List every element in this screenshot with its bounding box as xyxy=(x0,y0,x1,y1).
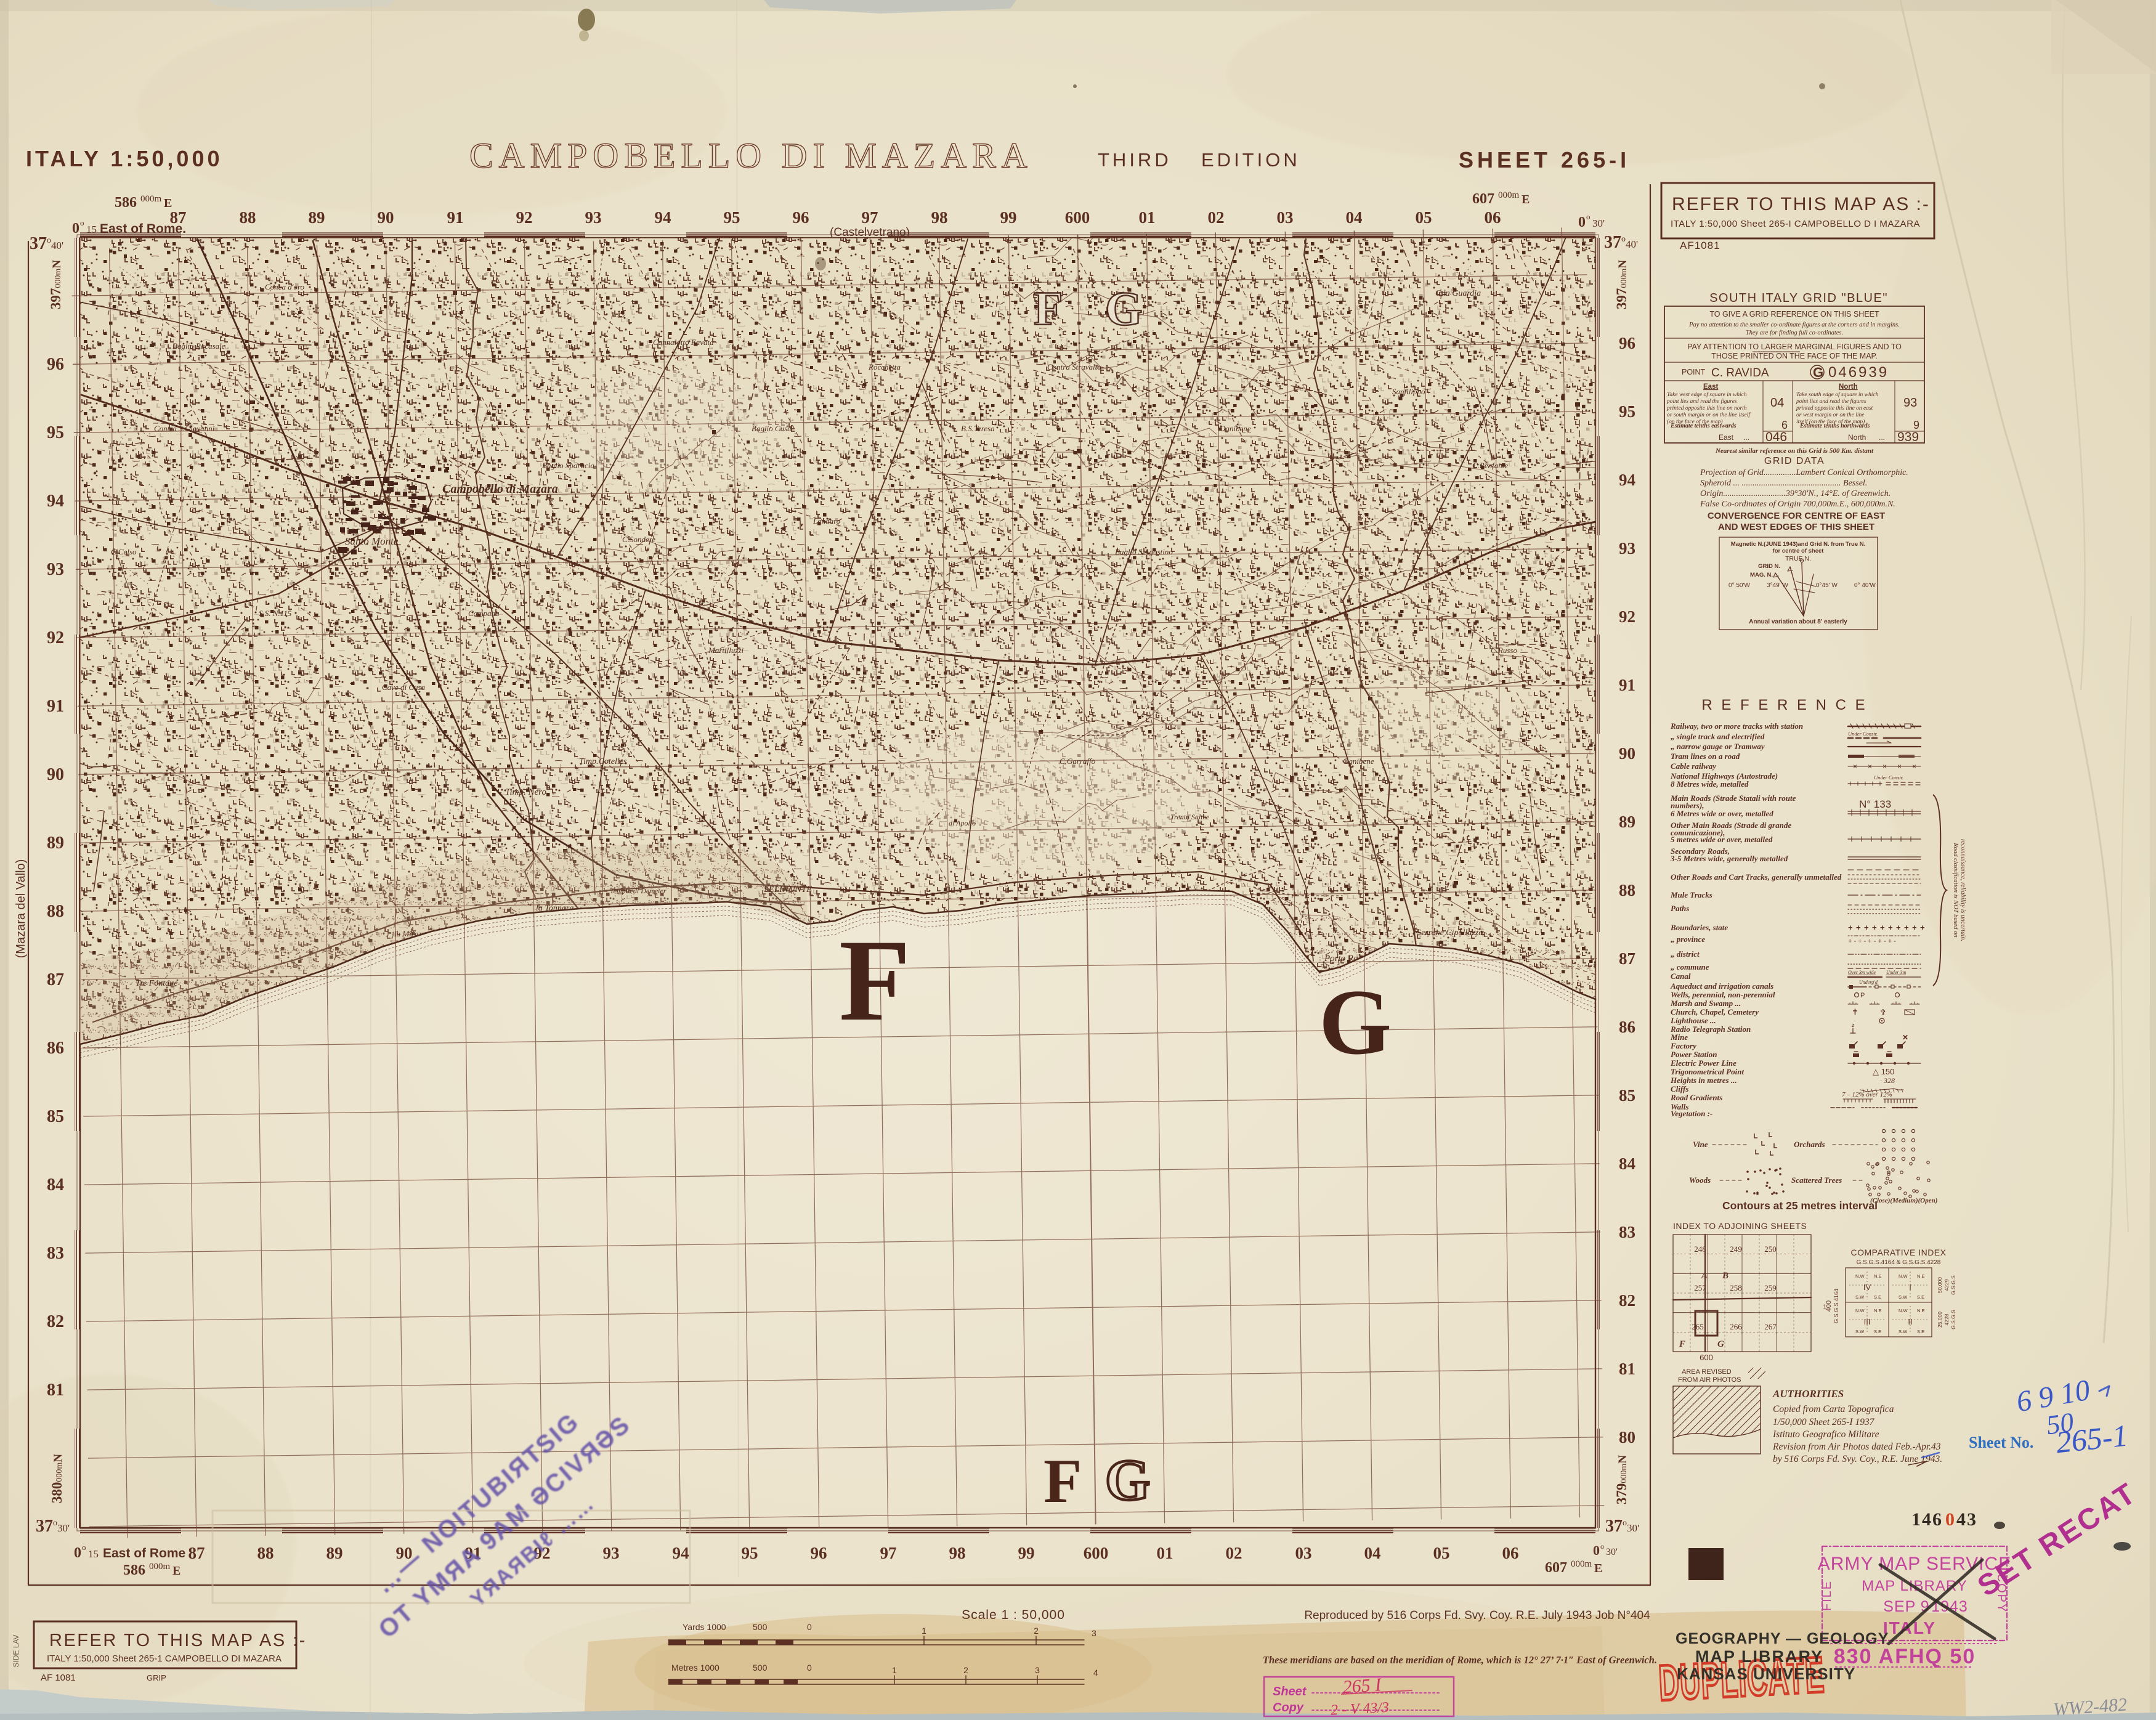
svg-text:PAY ATTENTION TO LARGER MA: PAY ATTENTION TO LARGER MARGINAL FIGURES… xyxy=(1687,343,1902,351)
svg-text:7 – 12% over 12%: 7 – 12% over 12% xyxy=(1842,1091,1892,1098)
svg-text:Church, Chapel, Cemetery: Church, Chapel, Cemetery xyxy=(1671,1007,1759,1016)
svg-text:o: o xyxy=(80,218,84,227)
svg-text:C. RAVIDA: C. RAVIDA xyxy=(1711,367,1769,379)
svg-text:Paths: Paths xyxy=(1671,904,1689,913)
svg-text:94: 94 xyxy=(655,208,671,227)
svg-text:×: × xyxy=(1897,762,1902,771)
svg-text:×: × xyxy=(1882,762,1887,771)
svg-text:88: 88 xyxy=(1619,881,1635,899)
svg-text:B.S.Teresa: B.S.Teresa xyxy=(961,424,995,433)
svg-text:Trenta Salme: Trenta Salme xyxy=(1170,813,1210,821)
svg-text:o: o xyxy=(1600,1542,1604,1551)
svg-text:Take west edge of square in wh: Take west edge of square in which xyxy=(1667,391,1747,398)
svg-text:Vegetation :-: Vegetation :- xyxy=(1671,1109,1712,1118)
svg-text:...: ... xyxy=(1743,433,1749,442)
svg-text:86: 86 xyxy=(1619,1018,1635,1036)
svg-text:N.W: N.W xyxy=(1855,1273,1865,1279)
svg-text:046: 046 xyxy=(1765,430,1787,444)
svg-text:000m: 000m xyxy=(140,194,162,204)
svg-text:Tempio di Demeter: Tempio di Demeter xyxy=(610,886,667,895)
svg-text:G.S.G.S.4164 & G.S.G.S.4228: G.S.G.S.4164 & G.S.G.S.4228 xyxy=(1857,1259,1941,1266)
svg-text:MAG. N.: MAG. N. xyxy=(1750,572,1773,578)
svg-text:Mine: Mine xyxy=(1670,1032,1688,1042)
svg-text:Conca d'oro: Conca d'oro xyxy=(265,282,305,291)
svg-text:or west margin or on the line: or west margin or on the line xyxy=(1796,412,1864,418)
svg-text:Ognibene: Ognibene xyxy=(1220,424,1251,433)
svg-text:Timp.Cotelles: Timp.Cotelles xyxy=(579,757,627,766)
svg-text:Power Station: Power Station xyxy=(1671,1050,1717,1059)
svg-text:S.W: S.W xyxy=(1855,1329,1865,1334)
svg-text:S.E: S.E xyxy=(1917,1294,1924,1300)
svg-text:15: 15 xyxy=(86,224,97,235)
svg-text:82: 82 xyxy=(1619,1291,1635,1310)
svg-text:93: 93 xyxy=(1619,539,1635,558)
svg-text:AUTHORITIES: AUTHORITIES xyxy=(1772,1388,1844,1400)
svg-text:0°45' W: 0°45' W xyxy=(1816,582,1838,589)
svg-text:000m: 000m xyxy=(1498,190,1520,200)
svg-text:94: 94 xyxy=(47,492,64,511)
svg-text:GRIP: GRIP xyxy=(147,1673,166,1682)
svg-text:Cable railway: Cable railway xyxy=(1671,761,1716,771)
svg-text:...: ... xyxy=(1879,433,1885,442)
svg-text:82: 82 xyxy=(47,1312,64,1331)
svg-text:AF 1081: AF 1081 xyxy=(41,1673,76,1683)
svg-text:REFER TO THIS MAP AS :-: REFER TO THIS MAP AS :- xyxy=(1672,194,1930,214)
svg-text:E: E xyxy=(172,1564,180,1578)
svg-text:Baglio Sparucia: Baglio Sparucia xyxy=(542,461,594,470)
svg-text:02: 02 xyxy=(1226,1544,1242,1562)
svg-text:Under Constr.: Under Constr. xyxy=(1848,731,1878,737)
svg-text:Magnetic N.(JUNE 1943)and Grid: Magnetic N.(JUNE 1943)and Grid N. from T… xyxy=(1731,541,1866,548)
svg-text:CAMPOBELLO DI MAZARA: CAMPOBELLO DI MAZARA xyxy=(469,136,1033,176)
svg-text:3°49' W: 3°49' W xyxy=(1767,582,1788,589)
svg-text:N.E: N.E xyxy=(1917,1308,1925,1313)
svg-text:93: 93 xyxy=(585,208,602,227)
svg-text:Annual variation about 8' east: Annual variation about 8' easterly xyxy=(1749,619,1847,625)
svg-text:E: E xyxy=(1522,193,1530,206)
svg-text:×: × xyxy=(1912,762,1916,771)
svg-text:or south margin or on the line: or south margin or on the line itself xyxy=(1667,412,1751,418)
svg-text:90: 90 xyxy=(47,765,64,784)
svg-text:Underg'd: Underg'd xyxy=(1859,980,1878,985)
svg-text:92: 92 xyxy=(1619,607,1635,626)
svg-text:N.W: N.W xyxy=(1899,1308,1908,1313)
svg-text:6 Metres wide or over, metalle: 6 Metres wide or over, metalled xyxy=(1671,809,1773,818)
svg-text:Canal: Canal xyxy=(1671,972,1691,981)
svg-text:607: 607 xyxy=(1545,1560,1567,1576)
svg-text:Yards 1000: Yards 1000 xyxy=(683,1622,726,1632)
svg-text:3: 3 xyxy=(1035,1665,1040,1675)
svg-text:96: 96 xyxy=(793,208,809,227)
svg-text:· 328: · 328 xyxy=(1880,1076,1895,1085)
svg-text:000m: 000m xyxy=(149,1562,171,1572)
svg-text:S.S. N.115: S.S. N.115 xyxy=(259,609,292,618)
svg-text:1/50,000 Sheet 265-I 1937: 1/50,000 Sheet 265-I 1937 xyxy=(1773,1417,1875,1427)
svg-text:4229: 4229 xyxy=(1943,1279,1950,1291)
svg-text:East of Rome: East of Rome xyxy=(103,1546,185,1560)
svg-text:G: G xyxy=(1105,1448,1150,1512)
svg-text:500: 500 xyxy=(753,1622,768,1632)
svg-text:259: 259 xyxy=(1764,1283,1777,1292)
svg-text:di Apollo: di Apollo xyxy=(949,819,976,827)
svg-text:+: + xyxy=(1864,923,1869,932)
svg-text:z: z xyxy=(1852,1022,1855,1028)
svg-text:Contra Stravalto: Contra Stravalto xyxy=(1047,362,1101,371)
svg-text:C.Sondere: C.Sondere xyxy=(622,535,655,544)
svg-text:CONVERGENCE FOR CENTRE OF: CONVERGENCE FOR CENTRE OF EAST xyxy=(1708,511,1885,521)
svg-text:96: 96 xyxy=(47,355,64,374)
svg-text:✕: ✕ xyxy=(1902,1033,1908,1042)
svg-text:0: 0 xyxy=(807,1622,812,1632)
svg-text:Trigonometrical Point: Trigonometrical Point xyxy=(1671,1067,1744,1076)
svg-text:G.S.G.S: G.S.G.S xyxy=(1950,1275,1956,1295)
svg-text:50,000: 50,000 xyxy=(1937,1277,1943,1293)
svg-text:N.E: N.E xyxy=(1917,1273,1925,1279)
svg-text:„ single track and electr: „ single track and electrified xyxy=(1671,732,1765,741)
svg-text:250: 250 xyxy=(1764,1244,1777,1254)
svg-text:+: + xyxy=(1920,923,1925,932)
svg-text:+: + xyxy=(1896,923,1901,932)
svg-text:Serrone Cipollazzo: Serrone Cipollazzo xyxy=(1417,928,1483,938)
svg-text:4228: 4228 xyxy=(1943,1313,1950,1325)
svg-text:FROM AIR PHOTOS: FROM AIR PHOTOS xyxy=(1678,1376,1741,1384)
svg-text:Baglio Cusa: Baglio Cusa xyxy=(752,424,792,433)
svg-text:94: 94 xyxy=(1619,471,1635,489)
svg-text:GRID N.: GRID N. xyxy=(1758,563,1780,570)
svg-text:2 - V 43/3: 2 - V 43/3 xyxy=(1330,1700,1389,1719)
svg-text:03: 03 xyxy=(1295,1544,1312,1562)
svg-text:6: 6 xyxy=(1781,419,1788,431)
svg-text:„ commune: „ commune xyxy=(1671,962,1709,972)
svg-text:S.E: S.E xyxy=(1874,1294,1881,1300)
svg-text:3: 3 xyxy=(1092,1628,1096,1638)
svg-text:o: o xyxy=(82,1543,86,1552)
svg-text:87: 87 xyxy=(47,970,64,989)
svg-text:G.S.G.S: G.S.G.S xyxy=(1950,1310,1956,1329)
svg-text:N.E: N.E xyxy=(1874,1273,1882,1279)
svg-text:SOUTH ITALY GRID "BLUE": SOUTH ITALY GRID "BLUE" xyxy=(1709,291,1888,305)
svg-text:586: 586 xyxy=(123,1562,145,1578)
svg-text:Reproduced by 516 Corps Fd.: Reproduced by 516 Corps Fd. Svy. Coy. R.… xyxy=(1304,1609,1650,1622)
svg-text:Wells, perennial, non-perennia: Wells, perennial, non-perennial xyxy=(1671,990,1775,999)
svg-text:KANSAS UNIVERSITY: KANSAS UNIVERSITY xyxy=(1677,1665,1855,1683)
svg-text:1: 1 xyxy=(892,1665,897,1675)
svg-text:Tre Fontane: Tre Fontane xyxy=(136,979,177,988)
svg-text:SELINUNTE: SELINUNTE xyxy=(764,885,812,894)
svg-text:06: 06 xyxy=(1485,208,1501,227)
svg-text:FILE: FILE xyxy=(1820,1580,1834,1611)
svg-text:2: 2 xyxy=(1034,1626,1039,1636)
svg-text:printed opposite this line on: printed opposite this line on east xyxy=(1796,405,1873,412)
svg-text:„ district: „ district xyxy=(1671,949,1700,959)
svg-text:B: B xyxy=(1722,1271,1728,1281)
svg-text:Under 3m: Under 3m xyxy=(1886,970,1906,975)
svg-text:MAP LIBRARY: MAP LIBRARY xyxy=(1695,1647,1823,1666)
svg-text:Timp. Nero: Timp. Nero xyxy=(505,787,546,797)
svg-text:2: 2 xyxy=(963,1665,968,1675)
svg-text:04: 04 xyxy=(1770,396,1784,410)
svg-text:Electric Power Line: Electric Power Line xyxy=(1670,1058,1737,1068)
svg-text:These meridians are based on t: These meridians are based on the meridia… xyxy=(1263,1654,1657,1666)
svg-text:88: 88 xyxy=(240,208,256,227)
svg-text:+: + xyxy=(1880,923,1885,932)
svg-text:Take south edge of square in w: Take south edge of square in which xyxy=(1796,391,1879,398)
svg-text:for centre of sheet: for centre of sheet xyxy=(1773,548,1825,554)
svg-text:0: 0 xyxy=(1578,214,1586,230)
svg-text:F: F xyxy=(1679,1339,1685,1349)
svg-text:point lies and read the figure: point lies and read the figures xyxy=(1796,398,1866,405)
svg-text:0° 50'W: 0° 50'W xyxy=(1728,582,1750,589)
svg-text:80: 80 xyxy=(1619,1428,1635,1446)
svg-text:87: 87 xyxy=(188,1544,205,1562)
svg-text:600: 600 xyxy=(1084,1544,1109,1562)
svg-text:Railway, two or more tracks wi: Railway, two or more tracks with station xyxy=(1670,721,1803,731)
svg-text:+ - + - + - + - + -: + - + - + - + - + - xyxy=(1848,938,1896,945)
svg-text:25,000: 25,000 xyxy=(1937,1312,1943,1328)
svg-text:146: 146 xyxy=(1911,1509,1943,1530)
svg-text:8 Metres wide, metalled: 8 Metres wide, metalled xyxy=(1671,779,1749,789)
svg-text:95: 95 xyxy=(724,208,740,227)
svg-text:0: 0 xyxy=(74,1545,81,1561)
svg-text:POINT: POINT xyxy=(1682,368,1706,376)
svg-text:TO GIVE A GRID REFERENCE: TO GIVE A GRID REFERENCE ON THIS SHEET xyxy=(1709,310,1879,318)
svg-text:Boundaries, state: Boundaries, state xyxy=(1670,923,1728,932)
svg-text:AF1081: AF1081 xyxy=(1680,240,1720,251)
svg-text:267: 267 xyxy=(1764,1322,1777,1331)
svg-text:F: F xyxy=(1044,1446,1082,1516)
svg-text:81: 81 xyxy=(1619,1360,1635,1378)
svg-text:05: 05 xyxy=(1433,1544,1450,1562)
svg-text:939: 939 xyxy=(1897,430,1919,444)
svg-text:93: 93 xyxy=(47,560,64,579)
svg-text:False Co-ordinates of Origin 7: False Co-ordinates of Origin 700,000m.E.… xyxy=(1700,500,1895,509)
svg-text:„ narrow gauge or Tramway: „ narrow gauge or Tramway xyxy=(1671,742,1765,751)
svg-text:„ province: „ province xyxy=(1671,935,1705,944)
svg-text:Rocchetta: Rocchetta xyxy=(868,362,901,371)
svg-text:Origin........................: Origin.............................39°30… xyxy=(1700,489,1891,498)
svg-text:Estimate tenths northwards: Estimate tenths northwards xyxy=(1799,423,1870,429)
svg-text:Sheet: Sheet xyxy=(1273,1685,1307,1698)
svg-text:C.Celso: C.Celso xyxy=(111,547,137,556)
svg-text:Mule Tracks: Mule Tracks xyxy=(1670,890,1712,899)
svg-text:265: 265 xyxy=(1692,1322,1704,1331)
svg-text:91: 91 xyxy=(447,208,464,227)
svg-text:Woods: Woods xyxy=(1689,1175,1711,1185)
svg-text:+: + xyxy=(1856,923,1861,932)
svg-text:98: 98 xyxy=(931,208,948,227)
svg-text:Spheroid ... .................: Spheroid ... ...........................… xyxy=(1700,479,1867,488)
svg-text:Sheet No.: Sheet No. xyxy=(1969,1434,2033,1451)
svg-text:89: 89 xyxy=(47,834,64,853)
svg-text:G: G xyxy=(1319,970,1392,1074)
svg-text:North: North xyxy=(1839,383,1858,391)
svg-text:0: 0 xyxy=(1945,1509,1955,1530)
svg-text:△ 150: △ 150 xyxy=(1873,1067,1894,1076)
svg-text:97: 97 xyxy=(862,208,878,227)
svg-text:✝: ✝ xyxy=(1852,1007,1858,1016)
svg-text:248: 248 xyxy=(1694,1244,1706,1254)
svg-text:Baglio Racasale: Baglio Racasale xyxy=(172,341,225,351)
svg-text:SHEET 265-I: SHEET 265-I xyxy=(1459,147,1630,172)
svg-text:Other Roads and Cart Tracks, g: Other Roads and Cart Tracks, generally u… xyxy=(1671,872,1842,882)
svg-text:258: 258 xyxy=(1730,1283,1742,1292)
svg-text:Scattered Trees: Scattered Trees xyxy=(1791,1175,1842,1185)
svg-text:90: 90 xyxy=(1619,744,1635,763)
svg-text:91: 91 xyxy=(47,697,64,716)
svg-text:Under Constr.: Under Constr. xyxy=(1874,774,1903,781)
svg-text:06: 06 xyxy=(1502,1544,1519,1562)
svg-text:ITALY 1:50,000: ITALY 1:50,000 xyxy=(26,146,223,171)
svg-text:+: + xyxy=(1872,923,1877,932)
svg-text:C.Garraffo: C.Garraffo xyxy=(1060,757,1096,766)
svg-text:89: 89 xyxy=(326,1544,343,1562)
svg-text:81: 81 xyxy=(47,1381,64,1400)
svg-text:4: 4 xyxy=(1093,1668,1098,1677)
svg-text:85: 85 xyxy=(1619,1086,1635,1105)
svg-text:88: 88 xyxy=(257,1544,274,1562)
svg-text:They are for finding full co-o: They are for finding full co-ordinates. xyxy=(1746,330,1843,336)
svg-text:Copy: Copy xyxy=(1273,1701,1304,1714)
svg-text:F: F xyxy=(839,916,910,1045)
svg-text:S.W: S.W xyxy=(1899,1294,1908,1300)
svg-text:3-5 Metres wide, generally met: 3-5 Metres wide, generally metalled xyxy=(1670,854,1788,863)
svg-text:96: 96 xyxy=(811,1544,827,1562)
svg-text:04: 04 xyxy=(1364,1544,1381,1562)
svg-text:95: 95 xyxy=(1619,402,1635,421)
svg-text:96: 96 xyxy=(1619,334,1635,352)
svg-text:97: 97 xyxy=(880,1544,897,1562)
svg-text:×: × xyxy=(1868,762,1872,771)
svg-text:Campana: Campana xyxy=(468,609,500,618)
svg-text:Projection of Grid............: Projection of Grid...............Lambert… xyxy=(1700,468,1908,477)
svg-text:EDITION: EDITION xyxy=(1201,149,1300,171)
svg-text:P: P xyxy=(1860,992,1865,999)
svg-text:05: 05 xyxy=(1416,208,1432,227)
svg-text:S.W: S.W xyxy=(1899,1329,1908,1334)
svg-text:East: East xyxy=(1719,433,1734,442)
svg-text:Ognibene: Ognibene xyxy=(1343,757,1374,766)
svg-text:G: G xyxy=(1105,282,1143,335)
svg-text:30': 30' xyxy=(1592,217,1605,229)
svg-text:01: 01 xyxy=(1139,208,1156,227)
svg-text:500: 500 xyxy=(753,1663,768,1673)
svg-text:Istituto Geografico Militare: Istituto Geografico Militare xyxy=(1772,1429,1879,1440)
svg-text:SIDE LAV: SIDE LAV xyxy=(12,1634,20,1667)
svg-text:INDEX TO ADJOINING SHEETS: INDEX TO ADJOINING SHEETS xyxy=(1673,1221,1807,1231)
svg-text:15: 15 xyxy=(88,1548,99,1560)
svg-text:600: 600 xyxy=(1700,1353,1713,1362)
svg-text:N.W: N.W xyxy=(1855,1308,1865,1313)
svg-text:Orchards: Orchards xyxy=(1794,1140,1825,1149)
svg-text:93: 93 xyxy=(603,1544,620,1562)
svg-text:0: 0 xyxy=(1593,1543,1600,1558)
svg-text:000m: 000m xyxy=(1571,1559,1592,1569)
svg-text:N.E: N.E xyxy=(1874,1308,1882,1313)
svg-text:86: 86 xyxy=(47,1039,64,1058)
svg-text:GRID DATA: GRID DATA xyxy=(1764,456,1825,466)
svg-text:85: 85 xyxy=(47,1107,64,1126)
svg-text:Cliffs: Cliffs xyxy=(1671,1084,1688,1093)
svg-text:+: + xyxy=(1888,923,1893,932)
svg-text:90: 90 xyxy=(378,208,394,227)
svg-text:GEOGRAPHY — GEOLOGY: GEOGRAPHY — GEOLOGY xyxy=(1676,1630,1889,1647)
svg-text:99: 99 xyxy=(1018,1544,1035,1562)
svg-text:point lies and read the figure: point lies and read the figures xyxy=(1666,398,1737,405)
svg-text:THIRD: THIRD xyxy=(1098,149,1172,171)
svg-text:Over 3m wide: Over 3m wide xyxy=(1848,970,1876,975)
svg-text:92: 92 xyxy=(516,208,533,227)
svg-text:600: 600 xyxy=(1065,208,1090,227)
svg-text:92: 92 xyxy=(47,628,64,647)
svg-text:Martilluzzi: Martilluzzi xyxy=(708,646,744,655)
svg-text:F: F xyxy=(1034,282,1063,335)
svg-text:Heights in metres ...: Heights in metres ... xyxy=(1670,1076,1737,1085)
svg-text:✞: ✞ xyxy=(1880,1008,1886,1016)
svg-text:5 metres wide or over, metalle: 5 metres wide or over, metalled xyxy=(1671,835,1773,844)
svg-text:Marsh and Swamp ...: Marsh and Swamp ... xyxy=(1670,999,1741,1008)
svg-text:99: 99 xyxy=(1000,208,1017,227)
svg-text:Campobello di Mazara: Campobello di Mazara xyxy=(442,482,558,496)
svg-text:046939: 046939 xyxy=(1828,364,1889,381)
svg-text:Cave di Cusa: Cave di Cusa xyxy=(382,683,426,692)
svg-text:249: 249 xyxy=(1730,1244,1742,1254)
svg-text:83: 83 xyxy=(47,1244,64,1263)
svg-text:01: 01 xyxy=(1157,1544,1173,1562)
svg-text:E: E xyxy=(164,197,172,210)
svg-text:Factory: Factory xyxy=(1670,1041,1696,1050)
svg-text:93: 93 xyxy=(1903,396,1917,410)
svg-text:AND WEST EDGES OF THIS SH: AND WEST EDGES OF THIS SHEET xyxy=(1718,522,1874,532)
svg-text:(Close)(Medium)(Open): (Close)(Medium)(Open) xyxy=(1870,1197,1937,1204)
svg-text:1: 1 xyxy=(1823,1304,1826,1310)
svg-text:Metres 1000: Metres 1000 xyxy=(671,1663,719,1673)
svg-text:95: 95 xyxy=(47,423,64,442)
svg-text:Landaro: Landaro xyxy=(813,516,841,525)
svg-text:Sanfilippo: Sanfilippo xyxy=(1392,387,1425,396)
svg-text:REFER TO THIS MAP AS :-: REFER TO THIS MAP AS :- xyxy=(49,1631,307,1650)
svg-text:83: 83 xyxy=(1619,1223,1635,1241)
svg-text:G.S.G.S.4164: G.S.G.S.4164 xyxy=(1833,1289,1839,1323)
svg-text:S.E: S.E xyxy=(1874,1329,1881,1334)
svg-text:Contours at 25 metres interva: Contours at 25 metres interval xyxy=(1722,1199,1878,1212)
svg-text:R E F E R E N C E: R E F E R E N C E xyxy=(1701,697,1867,713)
svg-text:87: 87 xyxy=(1619,949,1635,968)
svg-text:0: 0 xyxy=(72,221,79,237)
svg-text:+: + xyxy=(1848,923,1853,932)
svg-text:N.W: N.W xyxy=(1899,1273,1908,1279)
svg-text:266: 266 xyxy=(1730,1322,1742,1331)
svg-text:reconnaissance, reliability is: reconnaissance, reliability is uncertain… xyxy=(1959,839,1966,941)
svg-text:Aqueduct and irrigation canals: Aqueduct and irrigation canals xyxy=(1670,981,1773,991)
svg-text:ITALY: ITALY xyxy=(1883,1618,1936,1637)
svg-text:89: 89 xyxy=(1619,813,1635,831)
svg-text:0° 40'W: 0° 40'W xyxy=(1854,582,1876,589)
svg-text:88: 88 xyxy=(47,902,64,921)
svg-text:1: 1 xyxy=(922,1626,926,1636)
svg-text:Nearest similar reference on t: Nearest similar reference on this Grid i… xyxy=(1715,447,1874,455)
svg-text:02: 02 xyxy=(1208,208,1225,227)
svg-text:Revision from Air Photos dated: Revision from Air Photos dated Feb.-Apr.… xyxy=(1772,1442,1941,1452)
svg-text:×: × xyxy=(1853,762,1857,771)
svg-text:(Castelvetrano): (Castelvetrano) xyxy=(830,226,910,239)
svg-text:G: G xyxy=(1717,1339,1724,1349)
svg-text:printed opposite this line on: printed opposite this line on north xyxy=(1666,405,1747,412)
svg-text:04: 04 xyxy=(1346,208,1363,227)
svg-text:43: 43 xyxy=(1956,1509,1977,1530)
svg-text:Road classification is NOT bas: Road classification is NOT based on xyxy=(1952,842,1959,938)
svg-text:S.W: S.W xyxy=(1855,1294,1865,1300)
svg-text:C.Benfante: C.Benfante xyxy=(1472,461,1508,470)
